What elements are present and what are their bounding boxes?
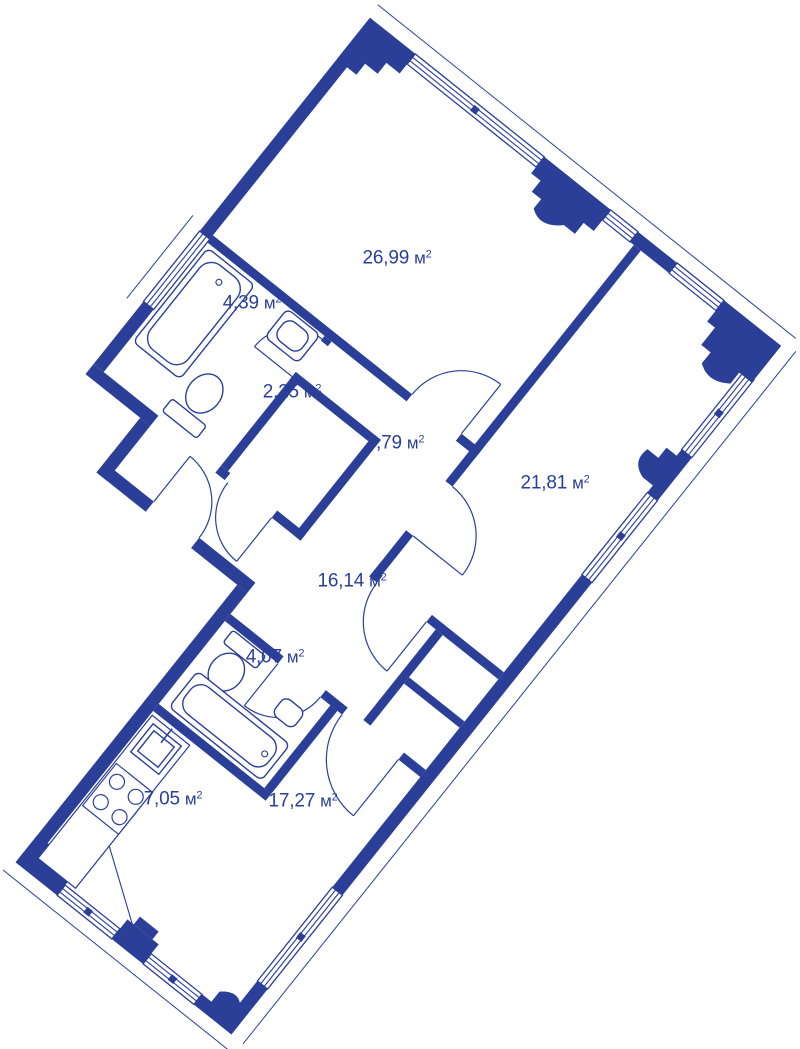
room-label-closet: 2,25м2 — [263, 383, 322, 402]
window — [257, 887, 342, 989]
pier-apex — [337, 18, 415, 96]
door-living — [412, 345, 501, 434]
room-area-unit: м — [264, 294, 276, 313]
door-leaf — [154, 456, 190, 501]
sink-icon — [272, 696, 306, 729]
room-area-value: 4,07 — [246, 647, 282, 668]
room-area-value: 21,81 — [521, 473, 568, 494]
outer-walls — [0, 18, 781, 1035]
floorplan-canvas: 26,99м2 4,39м2 2,25м2 7,79м2 21,81м2 16,… — [0, 0, 800, 1049]
room-area-unit: м — [304, 383, 316, 402]
window — [57, 885, 120, 939]
room-area-value: 7,05 — [144, 789, 180, 810]
piers — [0, 18, 781, 1035]
room-area-unit: м — [369, 572, 381, 591]
room-area-sup: 2 — [275, 294, 281, 306]
room-area-sup: 2 — [418, 434, 424, 446]
room-area-sup: 2 — [381, 572, 387, 584]
room-label-bathroom-main: 4,39м2 — [223, 294, 282, 313]
room-area-unit: м — [320, 792, 332, 811]
wall — [426, 615, 504, 679]
room-area-sup: 2 — [332, 792, 338, 804]
room-label-hallway-lower: 16,14м2 — [318, 572, 387, 591]
window — [682, 371, 755, 457]
room-label-bathroom-2nd: 4,07м2 — [246, 648, 305, 667]
room-area-value: 2,25 — [263, 382, 299, 403]
door-arc — [413, 487, 502, 576]
room-area-sup: 2 — [315, 383, 321, 395]
room-label-hallway-upper: 7,79м2 — [366, 434, 425, 453]
room-area-unit: м — [414, 249, 426, 268]
facade-line-bottom — [3, 870, 228, 1049]
wall — [398, 752, 425, 777]
fixtures — [0, 246, 505, 943]
room-area-sup: 2 — [584, 474, 590, 486]
toilet-icon — [162, 363, 234, 438]
room-area-unit: м — [185, 790, 197, 809]
windows — [0, 18, 781, 1035]
room-area-unit: м — [572, 474, 584, 493]
door-leaf — [237, 518, 272, 562]
pier-bottom-right — [194, 959, 268, 1034]
window — [143, 954, 202, 1005]
room-label-bedroom: 21,81м2 — [521, 474, 590, 493]
facade-outline — [0, 0, 800, 1049]
window — [669, 263, 724, 311]
wall — [445, 245, 640, 487]
room-area-value: 7,79 — [366, 433, 402, 454]
room-area-sup: 2 — [426, 249, 432, 261]
door-bedroom — [413, 487, 502, 576]
door-arc — [412, 345, 501, 434]
window — [582, 493, 658, 583]
room-area-unit: м — [407, 434, 419, 453]
shaft-wall — [404, 677, 464, 728]
floorplan-svg — [0, 0, 800, 1049]
facade-line-top — [378, 5, 796, 339]
door-leaf — [244, 663, 278, 705]
wall — [85, 364, 158, 426]
room-area-value: 17,27 — [269, 791, 316, 812]
room-label-living-zone: 17,27м2 — [269, 792, 338, 811]
pier-top — [512, 157, 611, 251]
room-area-sup: 2 — [196, 790, 202, 802]
room-area-sup: 2 — [298, 648, 304, 660]
door-leaf — [387, 622, 426, 671]
pier-right — [625, 432, 691, 501]
room-area-value: 4,39 — [223, 293, 259, 314]
room-area-value: 16,14 — [318, 571, 365, 592]
room-label-living-room: 26,99м2 — [363, 249, 432, 268]
wall — [94, 28, 372, 372]
window — [603, 210, 638, 242]
shaft-wall — [363, 629, 442, 725]
door-leaf — [413, 536, 462, 575]
door-leaf — [353, 760, 398, 816]
window — [407, 54, 544, 167]
room-area-value: 26,99 — [363, 248, 410, 269]
room-label-kitchen: 7,05м2 — [144, 790, 203, 809]
room-area-unit: м — [287, 648, 299, 667]
